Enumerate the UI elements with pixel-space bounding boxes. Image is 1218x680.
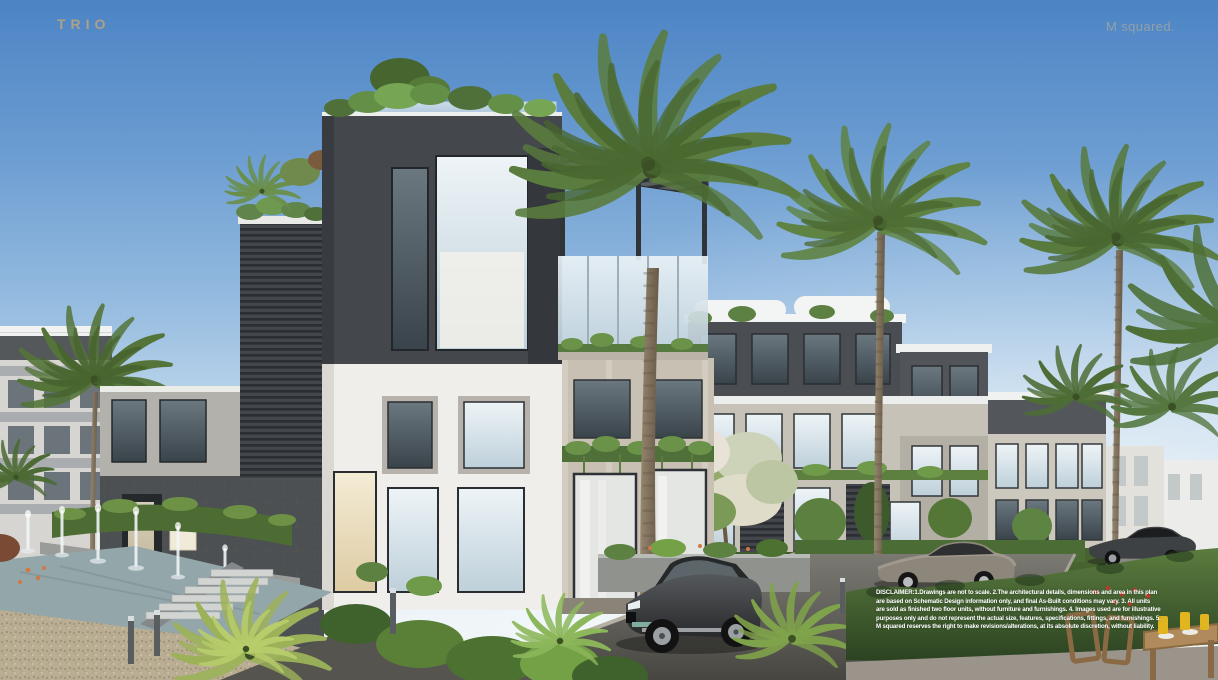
louver-facade	[240, 224, 322, 478]
disclaimer-line: are sold as finished two floor units, wi…	[876, 606, 1170, 615]
disclaimer-line: M squared reserves the right to make rev…	[876, 623, 1170, 632]
disclaimer-line: are based on Schematic Design informatio…	[876, 598, 1170, 607]
disclaimer-line: DISCLAIMER:1.Drawings are not to scale. …	[876, 589, 1170, 598]
scene-render	[0, 0, 1218, 680]
disclaimer-text: DISCLAIMER:1.Drawings are not to scale. …	[876, 589, 1170, 632]
m-squared-brand: M squared.	[1106, 19, 1175, 34]
trio-logo: TRIO	[57, 16, 110, 32]
brochure-page: TRIO M squared. DISCLAIMER:1.Drawings ar…	[0, 0, 1218, 680]
